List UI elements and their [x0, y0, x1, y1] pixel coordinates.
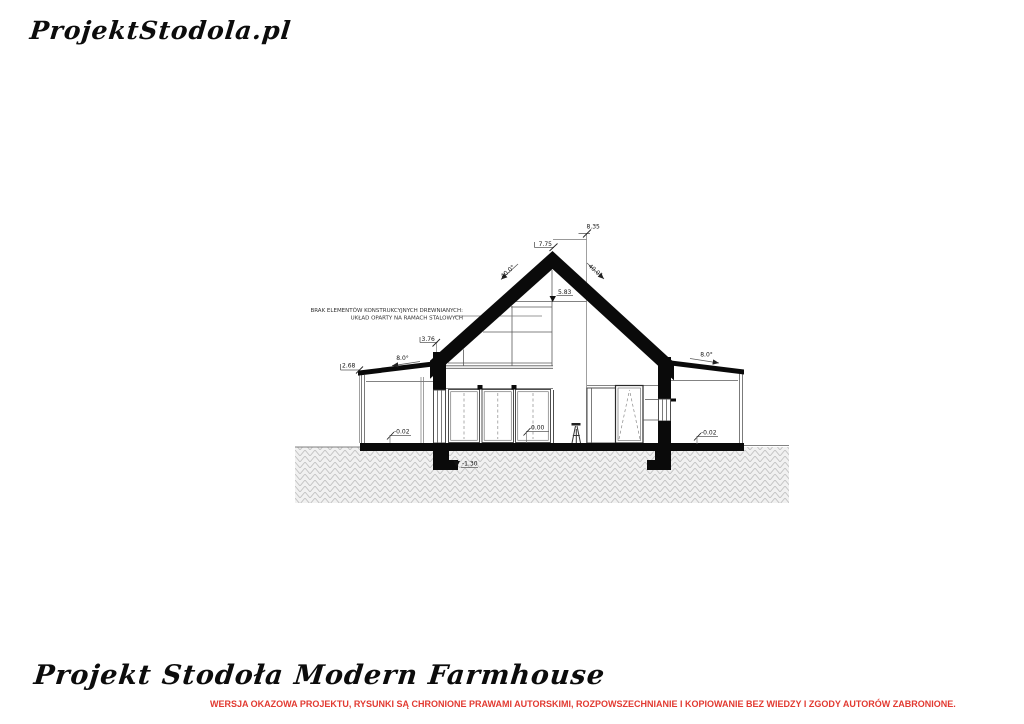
- floor-slab: [360, 443, 744, 451]
- roof-right-slope: [553, 251, 675, 380]
- page: ProjektStodola.pl: [0, 0, 1024, 724]
- dim-roof-angle-left: 40.0°: [500, 264, 517, 280]
- project-title: Projekt Stodoła Modern Farmhouse: [32, 660, 606, 691]
- left-annex-roof: [358, 362, 433, 376]
- structure-note-line2: UKŁAD OPARTY NA RAMACH STALOWYCH: [351, 316, 463, 322]
- interior-door: [616, 386, 659, 444]
- dim-floor-level: 0.00: [531, 425, 545, 432]
- dim-roof-angle-right: 40.0°: [587, 263, 604, 279]
- copyright-disclaimer: WERSJA OKAZOWA PROJEKTU, RYSUNKI SĄ CHRO…: [210, 699, 878, 709]
- dim-terrace-level-left: -0.02: [394, 429, 410, 436]
- dim-annex-roof-angle-left: 8.0°: [396, 355, 409, 362]
- house-cross-section-drawing: 7.75 8.35 5.83 3.76 2.68 0.00 -0.02 -0.0…: [0, 0, 1024, 724]
- dim-annex-edge-height: 2.68: [342, 363, 356, 370]
- dim-terrace-level-right: -0.02: [701, 430, 717, 437]
- structure-note-line1: BRAK ELEMENTÓW KONSTRUKCYJNYCH DREWNIANY…: [310, 307, 463, 314]
- dim-ridge-top-height: 8.35: [587, 224, 601, 231]
- dim-ridge-ceiling-height: 7.75: [539, 241, 553, 248]
- dim-annex-roof-angle-right: 8.0°: [700, 352, 713, 359]
- stool: [572, 423, 581, 443]
- dim-foundation-depth: -1.30: [462, 461, 478, 468]
- ground-hatch: [295, 446, 789, 504]
- left-wall: [433, 352, 446, 443]
- glass-doors: [446, 385, 554, 443]
- right-annex-roof: [671, 361, 744, 375]
- dim-eave-height: 3.76: [422, 336, 436, 343]
- dim-attic-level: 5.83: [558, 289, 572, 296]
